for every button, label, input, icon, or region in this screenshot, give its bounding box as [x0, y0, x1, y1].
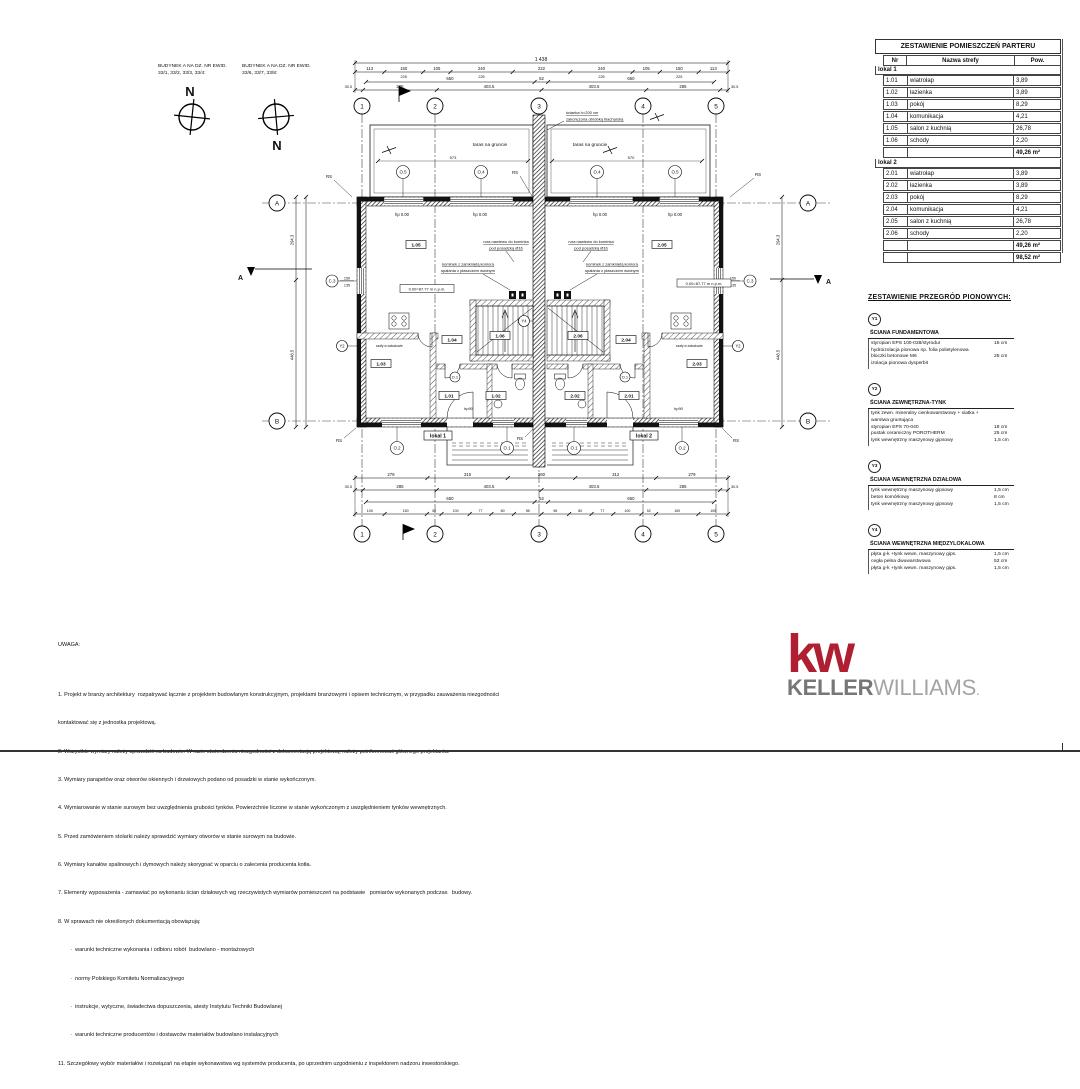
svg-text:RS: RS: [517, 436, 523, 441]
svg-text:52: 52: [432, 509, 436, 513]
room-nr: 1.01: [884, 76, 908, 85]
svg-text:kominek z zamkniętą komorą: kominek z zamkniętą komorą: [586, 262, 639, 267]
layer-row: izolacja pionowa dysperbit: [871, 361, 1014, 368]
table-row: 2.05 salon z kuchnią 26,78: [883, 216, 1061, 227]
party-wall: [533, 115, 545, 467]
room-area: 26,78: [1014, 217, 1060, 226]
svg-text:hp 0.00: hp 0.00: [395, 212, 410, 217]
stairs-left: [476, 306, 533, 355]
svg-text:0.00=87.77 m n.p.m.: 0.00=87.77 m n.p.m.: [409, 286, 446, 291]
svg-text:150: 150: [400, 66, 408, 71]
room-name: schody: [908, 136, 1014, 145]
layer-row: styropian EPS 100-038/styrodur 15 cm: [871, 341, 1014, 348]
room-103: 1.03: [376, 362, 386, 368]
lokal1-label: lokal 1: [430, 434, 446, 440]
svg-text:rura nawiewu do kominka: rura nawiewu do kominka: [568, 239, 614, 244]
room-name: komunikacja: [908, 112, 1014, 121]
layer-desc: izolacja pionowa dysperbit: [871, 361, 994, 368]
svg-text:30.5: 30.5: [345, 485, 352, 489]
c3-dim-w-left: 150: [344, 276, 350, 280]
svg-text:80: 80: [501, 509, 505, 513]
grid-col-1: 1: [360, 103, 364, 110]
room-nr: 2.03: [884, 193, 908, 202]
col-nr: Nr: [883, 55, 907, 66]
room-name: pokój: [908, 193, 1014, 202]
room-101: 1.01: [444, 394, 454, 400]
grid-col-2: 2: [433, 103, 437, 110]
table-row: 1.04 komunikacja 4,21: [883, 111, 1061, 122]
y2-name: ŚCIANA ZEWNĘTRZNA-TYNK: [868, 399, 1014, 409]
svg-text:312: 312: [612, 472, 620, 477]
terrace-right-dim: 570: [628, 155, 635, 160]
room-area: 2,20: [1014, 229, 1060, 238]
section-mark-left: A: [238, 267, 312, 282]
svg-text:RS: RS: [733, 438, 739, 443]
layer-thickness: 25 cm: [994, 431, 1014, 438]
grid-col-4: 4: [641, 103, 645, 110]
room-name: wiatrołap: [908, 169, 1014, 178]
svg-text:hp90: hp90: [674, 406, 684, 411]
room-area: 3,89: [1014, 169, 1060, 178]
layer-desc: styropian EPS 100-038/styrodur: [871, 341, 994, 348]
grid-col-5b: 5: [714, 531, 718, 538]
table-row: 1.02 łazienka 3,89: [883, 87, 1061, 98]
mark-c3-left: C.3: [329, 279, 336, 284]
svg-text:285: 285: [396, 484, 404, 489]
mark-c3-right: C.3: [747, 279, 754, 284]
svg-text:30.5: 30.5: [345, 85, 352, 89]
svg-text:100: 100: [453, 509, 459, 513]
svg-text:spalania z płaszczem wodnym: spalania z płaszczem wodnym: [585, 268, 640, 273]
room-name: pokój: [908, 100, 1014, 109]
room-nr: 2.04: [884, 205, 908, 214]
layer-row: tynk wewnętrzny maszynowy gipsowy 1,5 cm: [871, 502, 1014, 509]
svg-text:98: 98: [526, 509, 530, 513]
svg-text:30.5: 30.5: [731, 485, 738, 489]
dimensions-top-labels: 1 438 113 150 105 240 222 240 105 150 11…: [345, 57, 739, 89]
svg-text:0.00=87.77 m n.p.m.: 0.00=87.77 m n.p.m.: [686, 281, 723, 286]
notes-title: UWAGA:: [58, 642, 698, 649]
partition-legend: ZESTAWIENIE PRZEGRÓD PIONOWYCH: Y1 ŚCIAN…: [868, 294, 1014, 588]
svg-text:240: 240: [598, 66, 606, 71]
svg-text:30.5: 30.5: [731, 85, 738, 89]
partition-y2: Y2 ŚCIANA ZEWNĘTRZNA-TYNK tynk zewn. min…: [868, 383, 1014, 446]
mark-o1-right: O.1: [570, 446, 578, 451]
terrace-right-label: taras na gruncie: [573, 142, 608, 148]
room-area: 4,21: [1014, 112, 1060, 121]
partition-y3: Y3 ŚCIANA WEWNĘTRZNA DZIAŁOWA tynk wewnę…: [868, 460, 1014, 510]
svg-text:150: 150: [676, 66, 684, 71]
svg-text:hp 0.00: hp 0.00: [593, 212, 608, 217]
room-204: 2.04: [621, 338, 631, 344]
terrace-right: [547, 125, 710, 197]
grid-col-3: 3: [537, 103, 541, 110]
grid-col-1b: 1: [360, 531, 364, 538]
col-name: Nazwa strefy: [907, 55, 1015, 66]
note-line: · normy Polskiego Komitetu Normalizacyjn…: [58, 976, 698, 983]
layer-thickness: 1,5 cm: [994, 552, 1014, 559]
svg-text:RS: RS: [336, 438, 342, 443]
porch-left: [447, 427, 533, 465]
svg-text:A: A: [238, 275, 243, 282]
grid-col-3b: 3: [537, 531, 541, 538]
svg-text:222: 222: [538, 66, 546, 71]
mark-o5-right: O.5: [671, 170, 679, 175]
y2-layers: tynk zewn. mineralny cienkowarstwowy + s…: [868, 409, 1014, 446]
partition-y1: Y1 ŚCIANA FUNDAMENTOWA styropian EPS 100…: [868, 313, 1014, 369]
svg-text:650: 650: [627, 496, 635, 501]
y3-layers: tynk wewnętrzny maszynowy gipsowy 1,5 cm…: [868, 486, 1014, 510]
lokal2-section-label: lokal 2: [875, 159, 1061, 168]
svg-text:403.5: 403.5: [484, 484, 495, 489]
room-area: 4,21: [1014, 205, 1060, 214]
y3-name: ŚCIANA WEWNĘTRZNA DZIAŁOWA: [868, 476, 1014, 486]
dim-left-lower: 448.5: [290, 349, 295, 360]
room-name: wiatrołap: [908, 76, 1014, 85]
note-line: 8. W sprawach nie określonych dokumentac…: [58, 919, 698, 926]
svg-text:52: 52: [647, 509, 651, 513]
room-area: 26,78: [1014, 124, 1060, 133]
room-206: 2.06: [573, 334, 583, 340]
table-row: 2.01 wiatrołap 3,89: [883, 168, 1061, 179]
room-area: 2,20: [1014, 136, 1060, 145]
svg-text:spalania z płaszczem wodnym: spalania z płaszczem wodnym: [441, 268, 496, 273]
room-name: komunikacja: [908, 205, 1014, 214]
compass-rose-right: [256, 97, 295, 136]
svg-text:kominek z zamkniętą komorą: kominek z zamkniętą komorą: [442, 262, 495, 267]
table-row: 2.06 schody 2,20: [883, 228, 1061, 239]
layer-desc: tynk wewnętrzny maszynowy gipsowy: [871, 502, 994, 509]
table-row: 1.06 schody 2,20: [883, 135, 1061, 146]
layer-thickness: 1,5 cm: [994, 566, 1014, 573]
svg-text:285: 285: [679, 84, 687, 89]
room-202: 2.02: [570, 394, 580, 400]
note-line: 4. Wymiarowanie w stanie surowym bez uwz…: [58, 805, 698, 812]
kitchen-stove-right: [671, 313, 691, 329]
dimensions-left: [294, 195, 308, 429]
total-row: 98,52 m²: [883, 252, 1061, 263]
grid-col-2b: 2: [433, 531, 437, 538]
col-area: Pow.: [1015, 55, 1061, 66]
grid-axes: [262, 114, 830, 526]
table-row: 2.02 łazienka 3,89: [883, 180, 1061, 191]
room-nr: 2.05: [884, 217, 908, 226]
y4-layers: płyta g-k +tynk wewn. maszynowy gips. 1,…: [868, 550, 1014, 574]
room-name: łazienka: [908, 88, 1014, 97]
building2-line2: 33/6, 33/7, 33/8:: [242, 70, 277, 76]
room-schedule-table: ZESTAWIENIE POMIESZCZEŃ PARTERU Nr Nazwa…: [875, 39, 1061, 264]
svg-text:A: A: [826, 279, 831, 286]
y3-mark: Y3: [868, 460, 881, 473]
layer-row: tynk zewn. mineralny cienkowarstwowy + s…: [871, 411, 1014, 424]
room-nr: 2.06: [884, 229, 908, 238]
layer-thickness: 1,5 cm: [994, 438, 1014, 445]
lokal1-sum-row: 49,26 m²: [883, 147, 1061, 158]
logo-williams: WILLIAMS: [873, 675, 976, 700]
mark-d1-left: D.1: [452, 375, 458, 380]
table-row: 2.04 komunikacja 4,21: [883, 204, 1061, 215]
room-106: 1.06: [495, 334, 505, 340]
svg-text:240: 240: [478, 66, 486, 71]
note-line: · instrukcje, wytyczne, świadectwa dopus…: [58, 1004, 698, 1011]
layer-desc: płyta g-k +tynk wewn. maszynowy gips.: [871, 552, 994, 559]
layer-thickness: 52 cm: [994, 559, 1014, 566]
svg-text:szafy w zabudowie: szafy w zabudowie: [376, 344, 403, 348]
layer-row: cegła pełna dwuwarstwowa 52 cm: [871, 559, 1014, 566]
room-nr: 2.02: [884, 181, 908, 190]
mark-y2-left: Y2: [339, 344, 345, 349]
porch-right: [547, 427, 633, 465]
room-name: schody: [908, 229, 1014, 238]
svg-text:52: 52: [539, 496, 544, 501]
svg-text:77: 77: [600, 509, 604, 513]
mark-o4-left: O.4: [477, 170, 485, 175]
layer-row: tynk wewnętrzny maszynowy gipsowy 1,5 cm: [871, 438, 1014, 445]
svg-text:ścianka h=200 cm: ścianka h=200 cm: [566, 110, 599, 115]
room-102: 1.02: [491, 394, 501, 400]
table-outer-border: [1062, 39, 1063, 253]
sheet-bottom-border: [0, 750, 1080, 752]
y1-name: ŚCIANA FUNDAMENTOWA: [868, 329, 1014, 339]
svg-text:RS: RS: [512, 170, 518, 175]
table-row: 1.01 wiatrołap 3,89: [883, 75, 1061, 86]
layer-thickness: [994, 361, 1014, 368]
svg-text:260: 260: [538, 472, 546, 477]
layer-desc: bloczki betonowe M6: [871, 354, 994, 361]
keller-williams-logo: kw KELLERWILLIAMS.: [787, 630, 957, 701]
room-name: łazienka: [908, 181, 1014, 190]
lokal2-rows: 2.01 wiatrołap 3,89 2.02 łazienka 3,89 2…: [875, 168, 1061, 239]
room-name: salon z kuchnią: [908, 124, 1014, 133]
grid-col-4b: 4: [641, 531, 645, 538]
svg-text:403.5: 403.5: [484, 84, 495, 89]
room-area: 3,89: [1014, 88, 1060, 97]
mark-o4-right: O.4: [593, 170, 601, 175]
building1-line1: BUDYNEK A NA DZ. NR EWID.: [158, 63, 227, 69]
svg-text:105: 105: [433, 66, 441, 71]
svg-text:650: 650: [446, 496, 454, 501]
grid-row-a-left: A: [275, 200, 280, 207]
y4-name: ŚCIANA WEWNĘTRZNA MIĘDZYLOKALOWA: [868, 540, 1014, 550]
note-line: 7. Elementy wyposażenia - zamawiać po wy…: [58, 890, 698, 897]
room-nr: 1.02: [884, 88, 908, 97]
room-table-title: ZESTAWIENIE POMIESZCZEŃ PARTERU: [875, 39, 1061, 54]
partition-legend-title: ZESTAWIENIE PRZEGRÓD PIONOWYCH:: [868, 294, 1014, 301]
svg-text:650: 650: [446, 76, 454, 81]
logo-dot: .: [976, 682, 980, 698]
layer-desc: beton komórkowy: [871, 495, 994, 502]
room-205: 2.05: [657, 243, 667, 249]
y4-mark: Y4: [868, 524, 881, 537]
layer-thickness: 8 cm: [994, 495, 1014, 502]
room-area: 8,29: [1014, 100, 1060, 109]
mark-y2-right: Y2: [735, 344, 741, 349]
table-row: 1.05 salon z kuchnią 26,78: [883, 123, 1061, 134]
layer-row: bloczki betonowe M6 25 cm: [871, 354, 1014, 361]
grid-row-a-right: A: [806, 200, 811, 207]
building2-line1: BUDYNEK A NA DZ. NR EWID.: [242, 63, 311, 69]
logo-keller: KELLER: [787, 675, 873, 700]
terrace-left-dim: 573: [450, 155, 457, 160]
notes-block: UWAGA: 1. Projekt w branży architektury …: [58, 628, 698, 1089]
layer-desc: płyta g-k +tynk wewn. maszynowy gips.: [871, 566, 994, 573]
mark-o5-left: O.5: [399, 170, 407, 175]
north-label-right: N: [272, 138, 281, 153]
note-line: · warunki techniczne producentów i dosta…: [58, 1032, 698, 1039]
lokal1-section-label: lokal 1: [875, 66, 1061, 75]
logo-wordmark: KELLERWILLIAMS.: [787, 675, 957, 701]
layer-row: płyta g-k +tynk wewn. maszynowy gips. 1,…: [871, 566, 1014, 573]
grid-row-b-right: B: [806, 418, 810, 425]
note-line: 5. Przed zamówieniem stolarki należy spr…: [58, 834, 698, 841]
dim-right-upper: 294.3: [776, 234, 781, 245]
compass-rose-left: [172, 97, 212, 137]
svg-text:403.5: 403.5: [589, 484, 600, 489]
svg-text:szafy w zabudowie: szafy w zabudowie: [676, 344, 703, 348]
room-nr: 2.01: [884, 169, 908, 178]
c3-dim-h-left: 135: [344, 283, 350, 287]
notes-lines: 1. Projekt w branży architektury rozpatr…: [58, 663, 698, 1082]
room-nr: 1.05: [884, 124, 908, 133]
svg-text:RS: RS: [326, 174, 332, 179]
svg-text:310: 310: [464, 472, 472, 477]
svg-text:105: 105: [643, 66, 651, 71]
mark-o2-left: O.2: [393, 446, 401, 451]
mark-d1-right: D.1: [622, 375, 628, 380]
total-area: 98,52 m²: [1014, 253, 1060, 262]
layer-desc: pustak ceramiczny POROTHERM: [871, 431, 994, 438]
dim-left-upper: 294.3: [290, 234, 295, 245]
svg-text:650: 650: [627, 76, 635, 81]
note-line: 11. Szczegółowy wybór materiałów i rozwi…: [58, 1061, 698, 1068]
room-nr: 1.04: [884, 112, 908, 121]
svg-text:225: 225: [676, 75, 682, 79]
table-row: 1.03 pokój 8,29: [883, 99, 1061, 110]
terrace-left: [370, 125, 533, 197]
kw-logo-mark: kw: [787, 630, 957, 679]
kitchen-stove-left: [389, 313, 409, 329]
svg-text:pod posadzką Ø16: pod posadzką Ø16: [574, 246, 608, 251]
lokal1-sum: 49,26 m²: [1014, 148, 1060, 157]
layer-desc: cegła pełna dwuwarstwowa: [871, 559, 994, 566]
layer-desc: tynk zewn. mineralny cienkowarstwowy + s…: [871, 411, 994, 424]
svg-text:113: 113: [366, 66, 373, 71]
room-area: 3,89: [1014, 181, 1060, 190]
layer-thickness: [994, 411, 1014, 424]
room-203: 2.03: [692, 362, 702, 368]
room-table-header: Nr Nazwa strefy Pow.: [875, 55, 1061, 66]
svg-text:hp 0.00: hp 0.00: [668, 212, 683, 217]
layer-thickness: 1,5 cm: [994, 502, 1014, 509]
svg-text:225: 225: [598, 75, 604, 79]
svg-text:100: 100: [624, 509, 630, 513]
note-line: · warunki techniczne wykonania i odbioru…: [58, 947, 698, 954]
room-104: 1.04: [447, 338, 457, 344]
bathroom-fixtures-right: [555, 374, 587, 408]
sheet-border-tick: [1062, 743, 1063, 751]
building1-line2: 33/1, 33/2, 33/3, 33/4:: [158, 70, 206, 76]
svg-text:279: 279: [688, 472, 696, 477]
layer-row: beton komórkowy 8 cm: [871, 495, 1014, 502]
y1-mark: Y1: [868, 313, 881, 326]
note-line: 1. Projekt w branży architektury rozpatr…: [58, 692, 698, 699]
partition-y4: Y4 ŚCIANA WEWNĘTRZNA MIĘDZYLOKALOWA płyt…: [868, 524, 1014, 574]
layer-thickness: 25 cm: [994, 354, 1014, 361]
room-201: 2.01: [624, 394, 634, 400]
svg-text:225: 225: [478, 75, 484, 79]
mark-o2-right: O.2: [678, 446, 686, 451]
note-line: 6. Wymiary kanałów spalinowych i dymowyc…: [58, 862, 698, 869]
layer-thickness: 15 cm: [994, 341, 1014, 348]
layer-desc: tynk wewnętrzny maszynowy gipsowy: [871, 438, 994, 445]
grid-col-5: 5: [714, 103, 718, 110]
mark-y4: Y4: [521, 319, 527, 324]
svg-text:RS: RS: [755, 172, 761, 177]
note-line: kontaktować się z jednostka projektową.: [58, 720, 698, 727]
grid-row-b-left: B: [275, 418, 279, 425]
lokal1-rows: 1.01 wiatrołap 3,89 1.02 łazienka 3,89 1…: [875, 75, 1061, 146]
bathroom-fixtures-left: [494, 374, 526, 408]
svg-text:98: 98: [553, 509, 557, 513]
svg-text:105: 105: [710, 509, 716, 513]
svg-text:285: 285: [679, 484, 687, 489]
svg-text:77: 77: [479, 509, 483, 513]
svg-text:80: 80: [578, 509, 582, 513]
svg-text:150: 150: [674, 509, 680, 513]
svg-text:105: 105: [367, 509, 373, 513]
y1-layers: styropian EPS 100-038/styrodur 15 cm hyd…: [868, 339, 1014, 369]
room-area: 8,29: [1014, 193, 1060, 202]
svg-text:zakończona obróbką blacharską: zakończona obróbką blacharską: [566, 117, 624, 122]
svg-text:hp 0.00: hp 0.00: [473, 212, 488, 217]
terrace-left-label: taras na gruncie: [473, 142, 508, 148]
lokal2-label: lokal 2: [636, 434, 652, 440]
north-label-left: N: [185, 84, 194, 99]
lokal2-sum-row: 49,26 m²: [883, 240, 1061, 251]
svg-text:403.5: 403.5: [589, 84, 600, 89]
layer-row: płyta g-k +tynk wewn. maszynowy gips. 1,…: [871, 552, 1014, 559]
y2-mark: Y2: [868, 383, 881, 396]
room-name: salon z kuchnią: [908, 217, 1014, 226]
room-105: 1.05: [411, 243, 421, 249]
dim-right-lower: 448.5: [776, 349, 781, 360]
svg-text:hp90: hp90: [464, 406, 474, 411]
room-nr: 1.06: [884, 136, 908, 145]
lokal2-sum: 49,26 m²: [1014, 241, 1060, 250]
room-nr: 1.03: [884, 100, 908, 109]
layer-row: pustak ceramiczny POROTHERM 25 cm: [871, 431, 1014, 438]
svg-text:225: 225: [401, 75, 407, 79]
svg-text:150: 150: [403, 509, 409, 513]
dimensions-right: [780, 195, 784, 429]
svg-text:pod posadzką Ø16: pod posadzką Ø16: [489, 246, 523, 251]
dim-total: 1 438: [535, 57, 548, 63]
mark-o1-left: O.1: [503, 446, 511, 451]
svg-text:rura nawiewu do kominka: rura nawiewu do kominka: [483, 239, 529, 244]
svg-text:52: 52: [539, 76, 544, 81]
stairs-right: [547, 306, 604, 355]
svg-text:113: 113: [710, 66, 717, 71]
section-mark-right: A: [770, 275, 831, 286]
svg-text:279: 279: [387, 472, 395, 477]
benchmark-right: 0.00=87.77 m n.p.m.: [677, 279, 731, 287]
table-row: 2.03 pokój 8,29: [883, 192, 1061, 203]
room-area: 3,89: [1014, 76, 1060, 85]
benchmark-left: 0.00=87.77 m n.p.m.: [400, 285, 454, 293]
note-line: 3. Wymiary parapetów oraz otworów okienn…: [58, 777, 698, 784]
